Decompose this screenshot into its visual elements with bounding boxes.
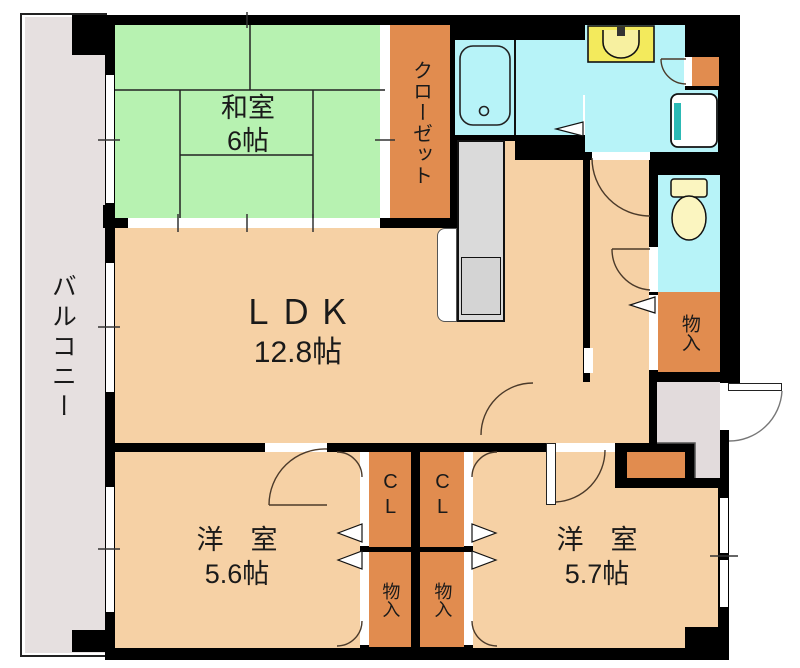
shoe-cabinet (627, 452, 685, 478)
ldk-label: ＬＤＫ (198, 295, 398, 333)
bedroom-right-door-opening (556, 443, 615, 452)
heater-closet-door (684, 57, 692, 86)
balcony-label: バルコニー (44, 228, 80, 468)
closet-label: クローゼット (404, 32, 436, 214)
washitsu-size: 6帖 (148, 127, 348, 157)
hall-wall-opening (584, 348, 593, 373)
kitchen-sink (461, 257, 501, 315)
bedroom-left-door-opening (265, 443, 327, 452)
window-bedroom-right-2 (720, 560, 728, 607)
room-genkan (657, 382, 720, 443)
washitsu-sliding-partition (128, 218, 380, 228)
window-bedroom-right-1 (720, 498, 728, 553)
cl-left-door (360, 452, 369, 546)
window-ldk (106, 263, 114, 392)
room-ldk-kitchen-b (515, 160, 583, 228)
room-bathroom (455, 40, 585, 135)
storage-left-label: 物入 (369, 562, 411, 637)
outside-area (729, 383, 800, 668)
wall-corner-bottom-right (685, 627, 729, 650)
entry-door-leaf (728, 383, 782, 391)
bedroom-left-size: 5.6帖 (137, 560, 337, 590)
washroom-hall-door-opening (592, 152, 650, 160)
storage-hall-door (649, 295, 658, 370)
closet-door-strip (380, 25, 390, 218)
storage-right-label: 物入 (420, 562, 464, 637)
hallway (590, 160, 649, 443)
cl-left-label: CL (369, 458, 411, 533)
heater-closet (692, 57, 719, 86)
washitsu-label: 和室 (148, 94, 348, 124)
bedroom-right-size: 5.7帖 (497, 560, 697, 590)
window-washitsu (106, 75, 114, 203)
bedroom-right-label: 洋 室 (497, 526, 697, 556)
bedroom-left-label: 洋 室 (137, 526, 337, 556)
wall-corner-bottom-left (72, 630, 105, 652)
room-washroom-ext (585, 90, 718, 152)
floor-plan: バルコニー 和室 6帖 クローゼット ＬＤＫ 12.8帖 物入 CL CL 物入… (0, 0, 800, 668)
wall-corner-top-left (72, 15, 105, 55)
ldk-size: 12.8帖 (198, 336, 398, 370)
cl-right-label: CL (420, 458, 464, 533)
room-toilet (658, 175, 720, 292)
kitchen-front-panel (437, 228, 457, 322)
bedroom-right-door-leaf (546, 443, 556, 505)
toilet-door-opening (649, 247, 658, 292)
room-genkan-step (695, 443, 720, 478)
cl-right-door (464, 452, 473, 546)
window-bedroom-left (106, 487, 114, 612)
storage-hall-label: 物入 (674, 298, 704, 368)
storage-right-door (464, 552, 473, 645)
storage-left-door (360, 552, 369, 645)
